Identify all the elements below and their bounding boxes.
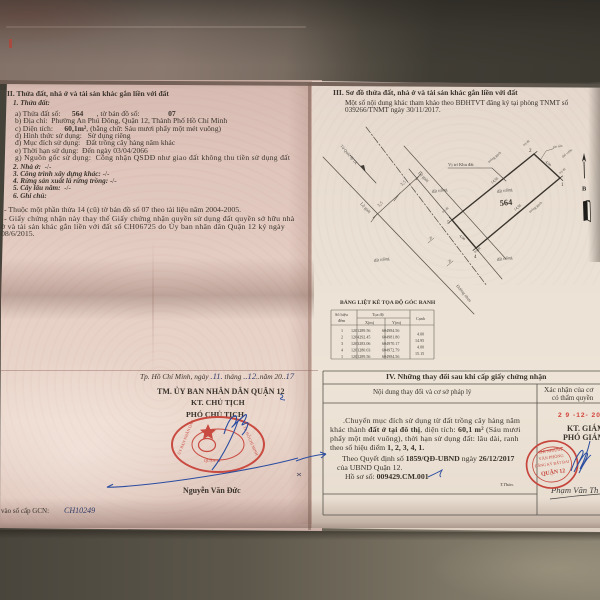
svg-text:Đường nhựa: Đường nhựa bbox=[455, 283, 472, 302]
svg-text:14.95: 14.95 bbox=[415, 338, 424, 343]
svg-text:X(m): X(m) bbox=[365, 320, 375, 325]
svg-text:3: 3 bbox=[341, 341, 343, 346]
svg-text:đểm: đểm bbox=[338, 318, 346, 323]
svg-text:14,95: 14,95 bbox=[513, 203, 523, 212]
svg-text:Tọa độ: Tọa độ bbox=[372, 312, 384, 317]
svg-text:2: 2 bbox=[341, 335, 343, 340]
svg-text:Y(m): Y(m) bbox=[392, 320, 402, 325]
svg-text:1201289.56: 1201289.56 bbox=[351, 328, 370, 333]
svg-text:đất trống: đất trống bbox=[496, 187, 513, 194]
svg-text:1204292.45: 1204292.45 bbox=[351, 335, 370, 340]
svg-text:604984.56: 604984.56 bbox=[382, 354, 399, 359]
svg-text:604972.79: 604972.79 bbox=[382, 348, 399, 353]
svg-text:2: 2 bbox=[529, 149, 532, 154]
svg-text:Cạnh: Cạnh bbox=[416, 316, 426, 321]
svg-text:thổ vườn: thổ vườn bbox=[560, 147, 573, 159]
svg-text:564: 564 bbox=[499, 198, 513, 208]
svg-text:604984.56: 604984.56 bbox=[382, 328, 399, 333]
svg-text:1: 1 bbox=[341, 354, 343, 359]
svg-text:1203283.06: 1203283.06 bbox=[351, 341, 370, 346]
svg-text:Vị trí Khu đất: Vị trí Khu đất bbox=[448, 162, 474, 167]
svg-text:Lộ giới: Lộ giới bbox=[359, 201, 372, 214]
svg-text:1201289.56: 1201289.56 bbox=[351, 354, 370, 359]
svg-text:Số hiệu: Số hiệu bbox=[335, 312, 349, 317]
svg-text:đất trống: đất trống bbox=[373, 256, 390, 263]
svg-text:4: 4 bbox=[474, 255, 477, 260]
svg-text:14,95: 14,95 bbox=[490, 176, 500, 185]
svg-text:Từ Quốc lộ 1A: Từ Quốc lộ 1A bbox=[339, 143, 359, 165]
svg-text:20: 20 bbox=[447, 258, 452, 263]
svg-text:đất trống: đất trống bbox=[496, 255, 513, 262]
svg-text:604981.80: 604981.80 bbox=[382, 335, 399, 340]
svg-text:4.00: 4.00 bbox=[417, 345, 424, 350]
svg-text:trụ đá: trụ đá bbox=[558, 167, 567, 175]
svg-text:móng gạch: móng gạch bbox=[487, 151, 502, 164]
svg-text:604970.17: 604970.17 bbox=[382, 341, 399, 346]
svg-text:4: 4 bbox=[341, 348, 343, 353]
svg-text:20: 20 bbox=[428, 235, 433, 240]
svg-text:trụ đá: trụ đá bbox=[522, 139, 531, 147]
svg-text:1: 1 bbox=[561, 183, 564, 188]
svg-text:1201280.03: 1201280.03 bbox=[351, 348, 370, 353]
svg-text:3,5: 3,5 bbox=[376, 200, 385, 209]
svg-text:Lộ giới: Lộ giới bbox=[417, 170, 430, 183]
svg-text:4.00: 4.00 bbox=[417, 332, 424, 337]
svg-text:B: B bbox=[582, 186, 587, 193]
svg-text:rào sân: rào sân bbox=[553, 144, 563, 149]
svg-text:15.15: 15.15 bbox=[415, 351, 424, 356]
svg-text:QUẬN 12: QUẬN 12 bbox=[541, 466, 566, 477]
svg-text:1: 1 bbox=[341, 328, 343, 333]
